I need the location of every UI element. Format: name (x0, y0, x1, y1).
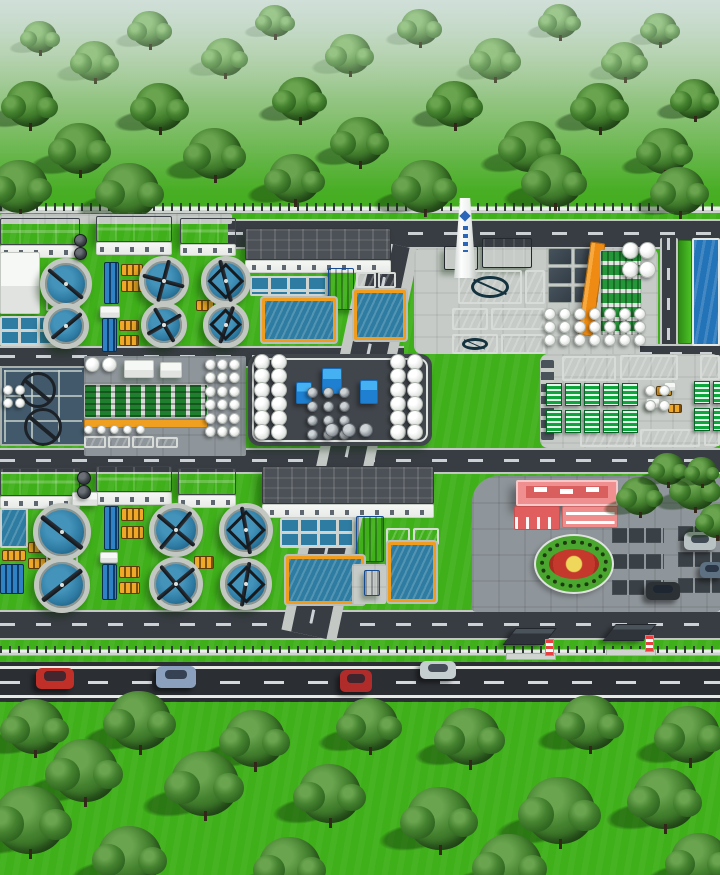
membrane-rack (694, 408, 710, 431)
tree (74, 41, 116, 81)
water-basin (132, 436, 154, 448)
storage-tank (323, 387, 334, 398)
storage-tank (589, 321, 601, 333)
car (700, 562, 720, 578)
tree (109, 691, 171, 750)
storage-tank (634, 321, 646, 333)
storage-tank (102, 357, 117, 372)
shelter-sign (545, 639, 554, 656)
building-roof (96, 466, 172, 492)
tree (440, 708, 500, 765)
tree (431, 81, 479, 127)
storage-tank (3, 385, 13, 395)
equipment-panel (102, 564, 117, 600)
storage-tank (604, 308, 616, 320)
storage-tank (74, 234, 87, 247)
storage-tank (217, 413, 228, 424)
storage-tank (574, 321, 586, 333)
storage-tank (619, 334, 631, 346)
tree (329, 34, 371, 74)
water-basin (356, 272, 376, 288)
storage-tank (639, 242, 656, 259)
bus-shelter (606, 624, 654, 656)
sedimentation-cell (548, 248, 572, 265)
sedimentation-cell (548, 267, 572, 284)
equipment-panel (0, 564, 24, 594)
utility-building (100, 306, 120, 318)
tree (277, 77, 323, 121)
clarifier-tank (33, 503, 91, 561)
equipment-skid (119, 566, 140, 578)
tree (342, 698, 398, 751)
tree (205, 38, 245, 76)
car (340, 670, 372, 692)
tree (335, 117, 385, 165)
water-basin (491, 308, 545, 330)
plant-aerial-render (0, 0, 720, 875)
storage-tank (407, 424, 423, 440)
basin-grid (280, 518, 354, 548)
clarifier-tank (43, 303, 89, 349)
storage-tank (254, 424, 270, 440)
storage-tank (339, 387, 350, 398)
road-edge-line (0, 666, 720, 669)
tree (23, 21, 57, 53)
building-roof (262, 466, 434, 504)
tree (259, 837, 321, 875)
building-roof (0, 468, 80, 496)
storage-tank (619, 308, 631, 320)
storage-tank (604, 321, 616, 333)
water-basin (525, 270, 545, 304)
storage-tank (217, 426, 228, 437)
parking-stall (612, 554, 664, 569)
tree (699, 504, 720, 538)
storage-tank (574, 334, 586, 346)
storage-tank (15, 398, 25, 408)
membrane-rack (694, 381, 710, 404)
storage-tank (217, 372, 228, 383)
membrane-rack (565, 410, 581, 433)
building-roof (178, 468, 236, 495)
water-basin (620, 355, 678, 380)
tree (527, 154, 583, 207)
storage-tank (307, 401, 318, 412)
car (156, 666, 196, 688)
tree (671, 833, 720, 875)
tree (6, 81, 54, 127)
aeration-basin (262, 298, 336, 342)
tree (269, 154, 321, 203)
storage-tank (217, 359, 228, 370)
tree (397, 160, 453, 213)
equipment-skid (121, 508, 144, 521)
tree (401, 9, 439, 45)
dark-roof-building (482, 238, 532, 268)
storage-tank (307, 415, 318, 426)
building-wall (96, 242, 172, 255)
storage-tank (74, 247, 87, 260)
building-roof (96, 216, 172, 242)
aeration-basin (388, 542, 436, 602)
equipment-skid (2, 550, 26, 561)
storage-tank (229, 372, 240, 383)
storage-tank (390, 424, 406, 440)
tree (98, 826, 162, 875)
water-basin (700, 355, 720, 380)
storage-tank (229, 413, 240, 424)
storage-tank (205, 413, 216, 424)
building-wall (96, 492, 172, 505)
tree (131, 11, 169, 47)
clarifier-tank (201, 256, 251, 306)
storage-tank (205, 426, 216, 437)
clarifier-tank (203, 302, 249, 348)
water-basin (562, 356, 616, 381)
tree (655, 167, 705, 215)
water-basin (108, 436, 130, 448)
storage-tank (339, 401, 350, 412)
membrane-rack (713, 408, 720, 431)
storage-tank (325, 423, 339, 437)
storage-tank (634, 334, 646, 346)
storage-tank (229, 359, 240, 370)
storage-tank (622, 261, 639, 278)
flower-ring (549, 549, 599, 579)
storage-tank (622, 242, 639, 259)
storage-tank (85, 357, 100, 372)
tree (687, 457, 717, 486)
aeration-circle (20, 372, 56, 408)
storage-tank (205, 359, 216, 370)
tree (633, 768, 697, 829)
tree (258, 5, 292, 37)
building-wall (180, 244, 236, 256)
flower-bed-roundabout (534, 534, 614, 594)
storage-tank (323, 401, 334, 412)
membrane-rack (546, 410, 562, 433)
storage-tank (544, 334, 556, 346)
aeration-circle (24, 408, 62, 446)
building-roof (245, 228, 391, 260)
storage-tank (307, 387, 318, 398)
storage-tank (634, 308, 646, 320)
utility-building (100, 552, 118, 563)
storage-tank (271, 424, 287, 440)
clarifier-tank (220, 558, 272, 610)
storage-tank (659, 400, 670, 411)
building-wall (262, 504, 434, 518)
parking-stall (678, 578, 720, 593)
storage-tank (574, 308, 586, 320)
membrane-rack (603, 383, 619, 406)
equipment-skid (119, 582, 140, 594)
tree (674, 79, 716, 119)
water-basin (378, 272, 396, 288)
storage-tank (77, 485, 91, 499)
water-basin (501, 334, 545, 354)
storage-tank (544, 321, 556, 333)
equipment-panel (104, 262, 119, 304)
membrane-rack (584, 410, 600, 433)
filter-gallery (84, 384, 208, 418)
storage-tank (217, 399, 228, 410)
tree (53, 123, 107, 174)
tree (188, 128, 242, 179)
storage-tank (217, 386, 228, 397)
storage-tank (645, 400, 656, 411)
tree (660, 706, 720, 763)
storage-tank (589, 308, 601, 320)
storage-tank (229, 386, 240, 397)
water-basin (452, 334, 498, 354)
tree (605, 42, 645, 80)
tree (407, 787, 473, 850)
storage-tank (619, 321, 631, 333)
chimney-markings (463, 226, 468, 252)
tree (478, 834, 542, 875)
sedimentation-cell (548, 286, 572, 303)
tree (299, 764, 361, 823)
storage-tank (77, 471, 91, 485)
storage-tank (205, 386, 216, 397)
tree (0, 160, 48, 213)
reservoir (692, 238, 720, 346)
membrane-rack (565, 383, 581, 406)
tree (135, 83, 185, 131)
tree (643, 13, 677, 45)
utility-building (160, 362, 182, 378)
storage-tank (229, 426, 240, 437)
equipment-skid (119, 335, 139, 346)
equipment-panel (104, 506, 119, 550)
equipment-skid (668, 404, 682, 413)
car (646, 582, 680, 600)
storage-tank (639, 261, 656, 278)
equipment-panel (102, 318, 117, 352)
storage-tank (84, 425, 93, 434)
storage-tank (559, 308, 571, 320)
water-basin (640, 429, 700, 447)
utility-building (124, 360, 154, 378)
membrane-rack (622, 383, 638, 406)
storage-tank (205, 372, 216, 383)
membrane-rack (546, 383, 562, 406)
treatment-basin (0, 508, 28, 548)
storage-tank (15, 385, 25, 395)
bus-shelter (506, 628, 554, 660)
storage-tank (645, 385, 656, 396)
tree (0, 786, 66, 854)
aeration-basin (354, 290, 406, 340)
storage-tank (342, 423, 356, 437)
utility-building (0, 252, 40, 314)
storage-tank (544, 308, 556, 320)
parking-stall (612, 528, 664, 543)
storage-tank (123, 425, 132, 434)
car (36, 668, 74, 689)
shelter-sign (645, 635, 654, 652)
membrane-rack (713, 381, 720, 404)
clarifier-tank (141, 302, 187, 348)
basin-grid (250, 276, 328, 296)
storage-tank (659, 385, 670, 396)
storage-tank (559, 334, 571, 346)
service-road (660, 238, 678, 346)
tree (171, 751, 239, 816)
membrane-rack (584, 383, 600, 406)
corrugated-shed (364, 570, 380, 596)
equipment-skid (121, 526, 144, 539)
car (420, 661, 456, 679)
water-basin (156, 437, 178, 448)
storage-tank (307, 429, 318, 440)
tree (575, 83, 625, 131)
building-roof (180, 218, 236, 244)
storage-tank (3, 398, 13, 408)
storage-tank (589, 334, 601, 346)
chimney-stack (452, 198, 478, 278)
storage-tank (229, 399, 240, 410)
storage-tank (136, 425, 145, 434)
storage-tank (559, 321, 571, 333)
tree (473, 38, 517, 80)
clarifier-tank (34, 557, 90, 613)
clarifier-tank (139, 256, 189, 306)
storage-tank (604, 334, 616, 346)
storage-tank (110, 425, 119, 434)
storage-tank (205, 399, 216, 410)
equipment-skid (119, 320, 139, 331)
membrane-rack (622, 410, 638, 433)
reservoir-bank (678, 240, 692, 344)
clarifier-tank (219, 503, 273, 557)
clarifier-tank (149, 503, 203, 557)
storage-tank (359, 423, 373, 437)
admin-building-wall (514, 506, 560, 530)
tree (561, 695, 619, 750)
membrane-rack (603, 410, 619, 433)
clarifier-tank (149, 557, 203, 611)
building-roof (0, 218, 80, 245)
water-basin (452, 308, 488, 330)
chemical-tank (360, 380, 378, 404)
tree (542, 4, 578, 38)
water-basin (84, 436, 106, 448)
tree (101, 163, 159, 218)
storage-tank (97, 425, 106, 434)
